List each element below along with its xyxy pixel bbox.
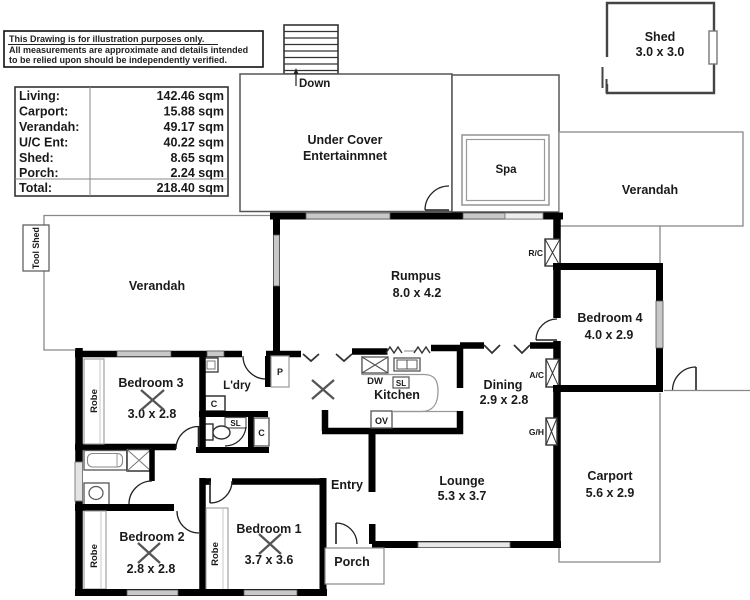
svg-text:5.6 x 2.9: 5.6 x 2.9: [586, 486, 635, 500]
svg-text:OV: OV: [375, 416, 388, 426]
svg-text:U/C Ent:: U/C Ent:: [19, 136, 68, 150]
svg-text:Living:: Living:: [19, 89, 60, 103]
svg-text:Tool Shed: Tool Shed: [31, 227, 41, 269]
svg-text:Shed: Shed: [645, 30, 676, 44]
svg-text:3.0 x 3.0: 3.0 x 3.0: [636, 45, 685, 59]
svg-text:Kitchen: Kitchen: [374, 388, 420, 402]
svg-text:DW: DW: [367, 376, 383, 387]
svg-text:SL: SL: [396, 379, 406, 388]
svg-text:P: P: [277, 367, 283, 377]
svg-text:8.0 x 4.2: 8.0 x 4.2: [393, 286, 442, 300]
svg-text:Lounge: Lounge: [439, 474, 484, 488]
svg-text:142.46 sqm: 142.46 sqm: [157, 89, 224, 103]
svg-text:L'dry: L'dry: [223, 380, 251, 392]
svg-text:C: C: [211, 399, 218, 409]
svg-text:5.3 x 3.7: 5.3 x 3.7: [438, 489, 487, 503]
svg-text:SL: SL: [230, 419, 240, 428]
svg-text:C: C: [258, 428, 265, 438]
svg-text:Entertainmnet: Entertainmnet: [303, 149, 388, 163]
svg-text:Total:: Total:: [19, 181, 52, 195]
svg-text:Verandah:: Verandah:: [19, 120, 79, 134]
svg-text:Verandah: Verandah: [622, 183, 678, 197]
svg-text:Rumpus: Rumpus: [391, 269, 441, 283]
svg-text:Spa: Spa: [495, 164, 517, 176]
svg-text:This Drawing is for illustrati: This Drawing is for illustration purpose…: [9, 34, 204, 44]
svg-text:3.0 x 2.8: 3.0 x 2.8: [128, 407, 177, 421]
svg-text:8.65 sqm: 8.65 sqm: [170, 151, 224, 165]
svg-text:2.8 x 2.8: 2.8 x 2.8: [127, 562, 176, 576]
svg-text:3.7 x 3.6: 3.7 x 3.6: [245, 553, 294, 567]
svg-text:Robe: Robe: [89, 389, 100, 413]
svg-text:4.0 x 2.9: 4.0 x 2.9: [585, 328, 634, 342]
svg-text:2.9 x 2.8: 2.9 x 2.8: [480, 393, 529, 407]
svg-text:Entry: Entry: [331, 478, 363, 492]
svg-text:15.88 sqm: 15.88 sqm: [164, 105, 224, 119]
svg-text:Dining: Dining: [484, 378, 523, 392]
svg-text:G/H: G/H: [529, 427, 544, 437]
svg-text:A/C: A/C: [529, 370, 544, 380]
svg-text:Shed:: Shed:: [19, 151, 54, 165]
svg-text:to be relied upon should be in: to be relied upon should be independentl…: [9, 55, 227, 65]
svg-text:Robe: Robe: [89, 544, 100, 568]
svg-text:Bedroom 4: Bedroom 4: [577, 311, 642, 325]
svg-text:Bedroom 2: Bedroom 2: [119, 530, 184, 544]
svg-text:Porch:: Porch:: [19, 166, 59, 180]
svg-text:Bedroom 1: Bedroom 1: [236, 522, 301, 536]
svg-text:Robe: Robe: [210, 542, 221, 566]
svg-text:Verandah: Verandah: [129, 279, 185, 293]
svg-text:Under Cover: Under Cover: [307, 133, 382, 147]
svg-text:2.24 sqm: 2.24 sqm: [170, 166, 224, 180]
svg-text:49.17 sqm: 49.17 sqm: [164, 120, 224, 134]
svg-text:Carport:: Carport:: [19, 105, 68, 119]
svg-text:All measurements are approxima: All measurements are approximate and det…: [9, 45, 248, 55]
svg-text:Carport: Carport: [587, 469, 633, 483]
svg-text:Porch: Porch: [334, 555, 369, 569]
svg-text:Bedroom 3: Bedroom 3: [118, 376, 183, 390]
svg-text:R/C: R/C: [528, 248, 543, 258]
svg-text:Down: Down: [299, 78, 330, 90]
svg-text:40.22 sqm: 40.22 sqm: [164, 136, 224, 150]
svg-text:218.40 sqm: 218.40 sqm: [157, 181, 224, 195]
